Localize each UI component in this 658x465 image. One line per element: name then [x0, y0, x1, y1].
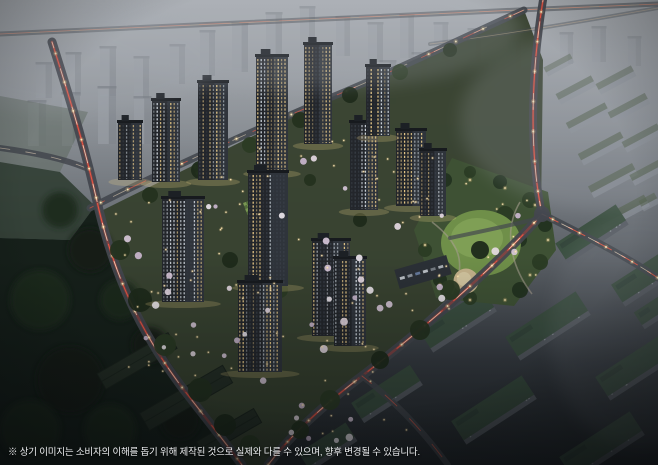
vignette	[0, 0, 658, 465]
aerial-rendering-svg	[0, 0, 658, 465]
disclaimer-caption: ※ 상기 이미지는 소비자의 이해를 돕기 위해 제작된 것으로 실제와 다를 …	[8, 444, 420, 458]
aerial-render-image: ※ 상기 이미지는 소비자의 이해를 돕기 위해 제작된 것으로 실제와 다를 …	[0, 0, 658, 465]
